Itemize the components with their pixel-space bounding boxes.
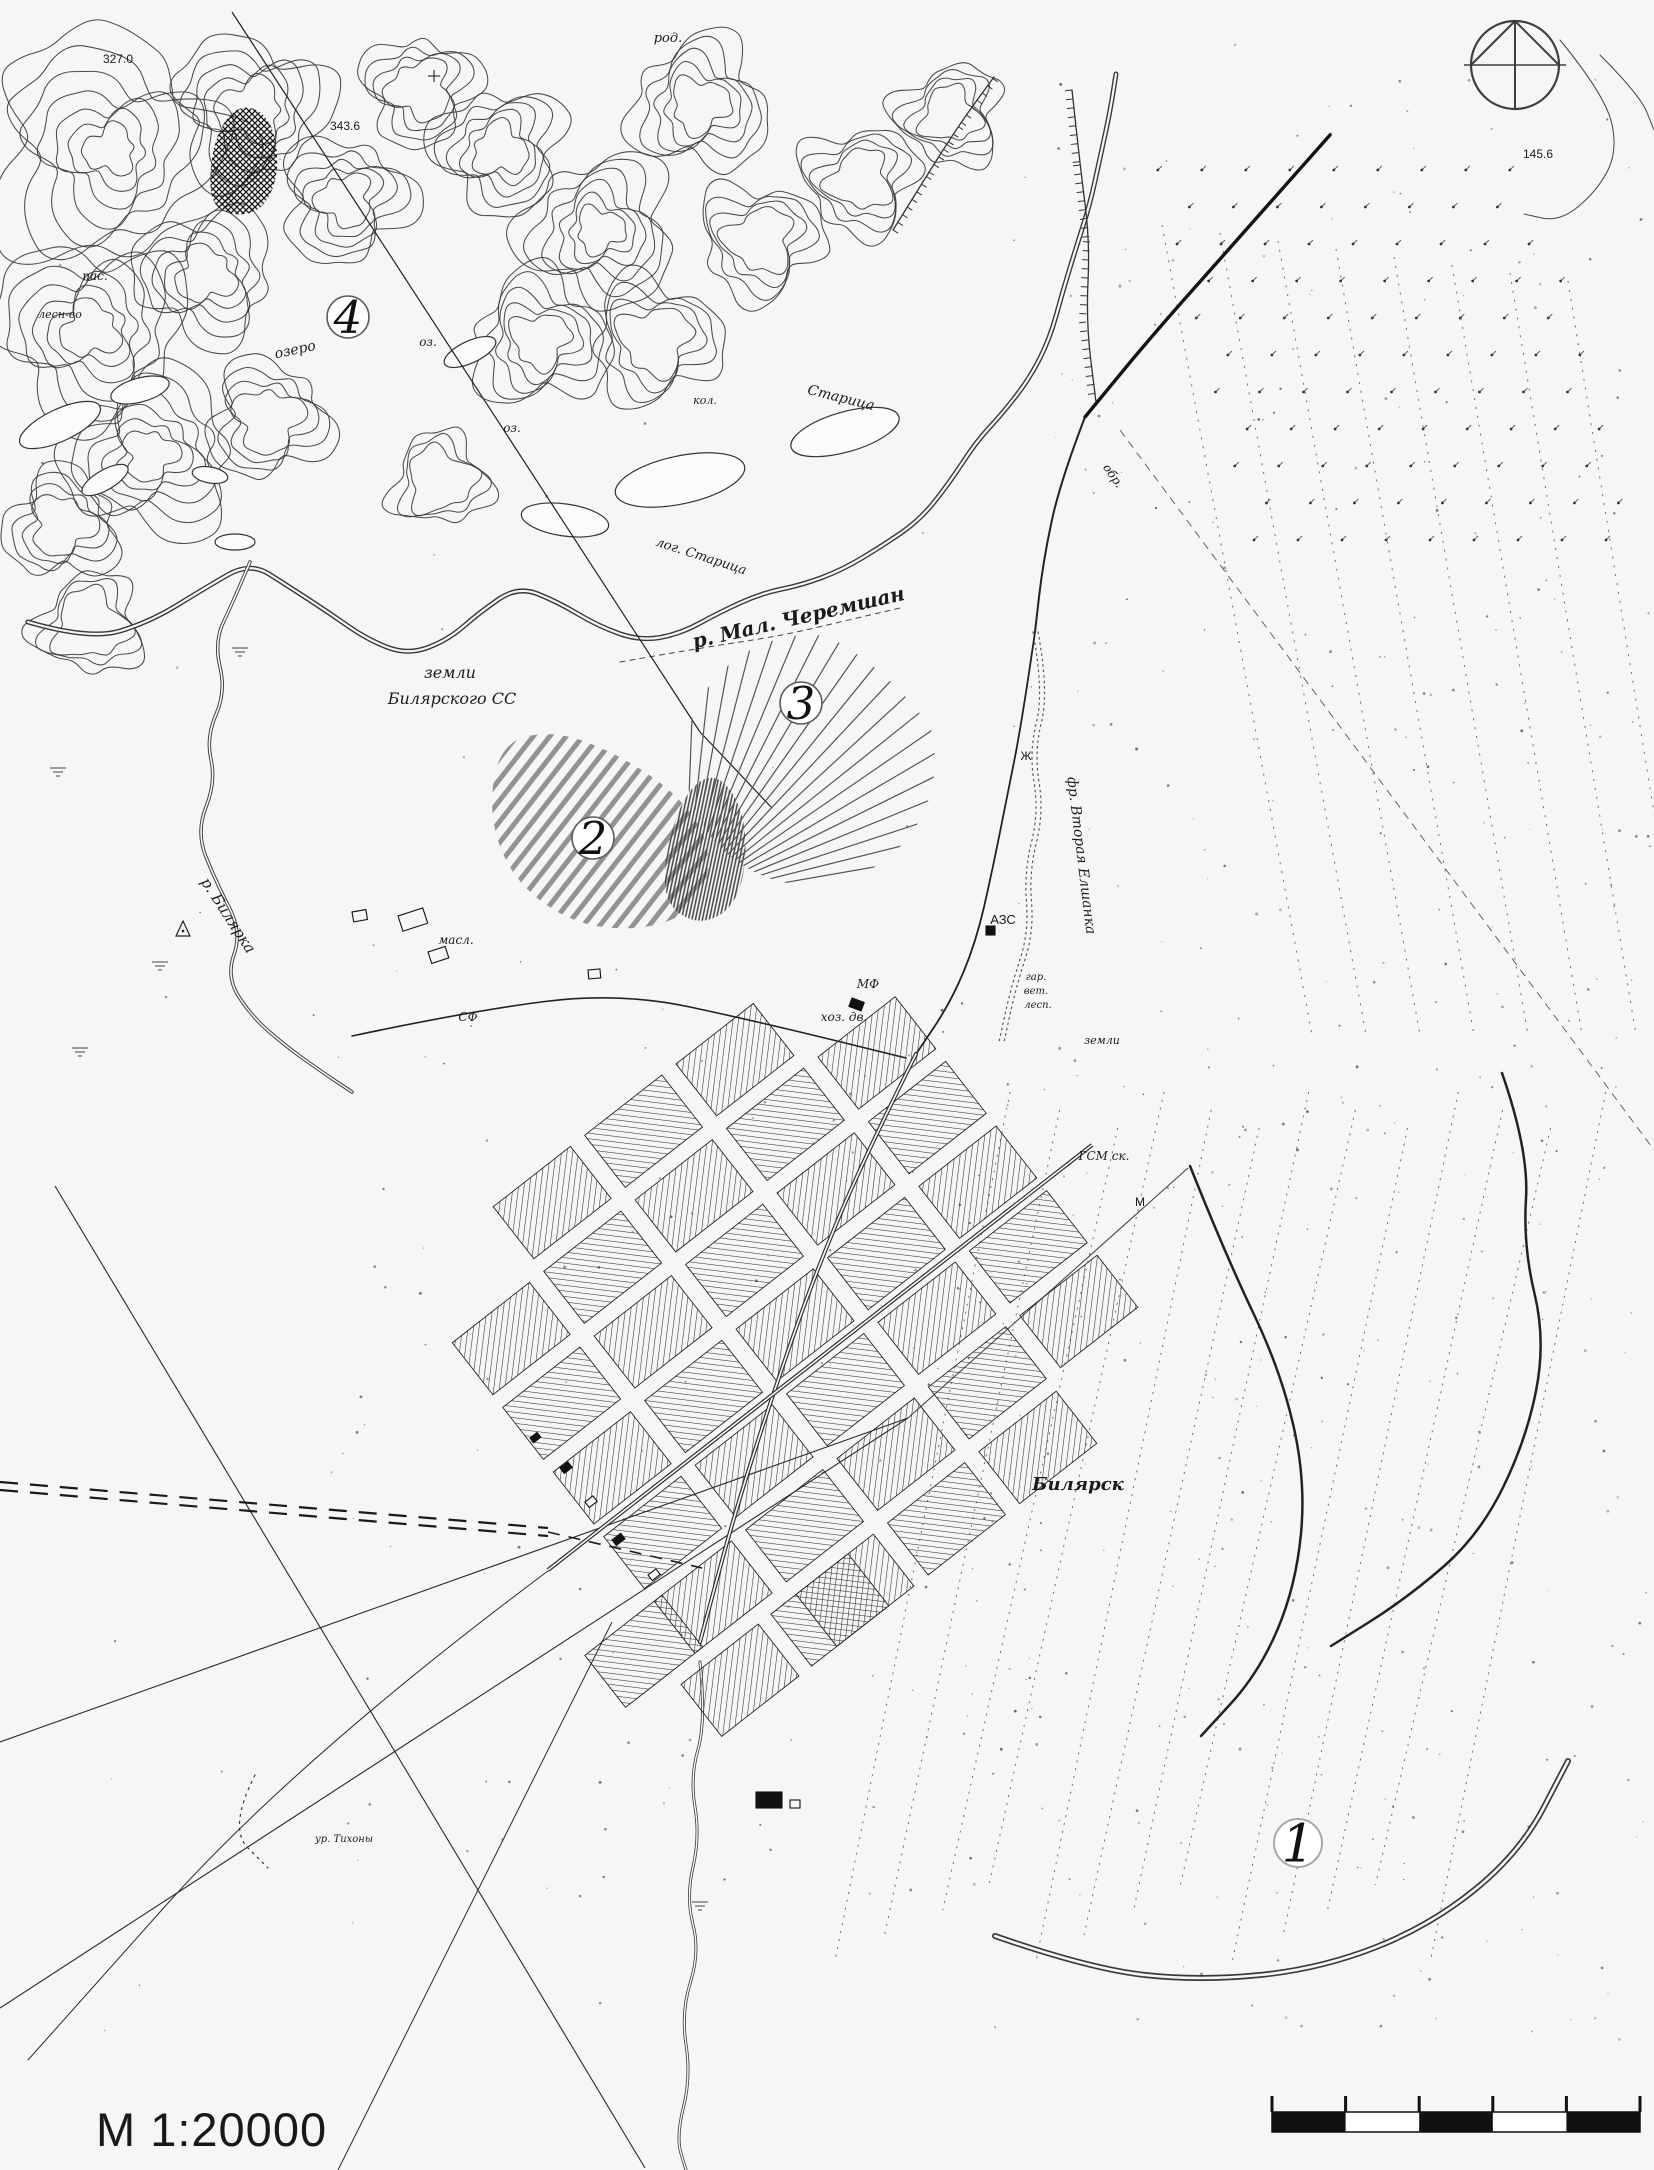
map-label: масл. bbox=[438, 933, 473, 947]
map-label: СФ bbox=[458, 1010, 477, 1024]
svg-text:4: 4 bbox=[333, 291, 363, 344]
map-label: ур. Тихоны bbox=[314, 1834, 373, 1845]
map-label: р. Мал. Черемшан bbox=[690, 581, 907, 653]
map-label: обр. bbox=[1100, 461, 1126, 490]
map-label: Билярского СС bbox=[387, 689, 517, 708]
map-canvas: 327.0343.6145.6род.пас.лесн-воозерооз.оз… bbox=[0, 0, 1654, 2170]
contour-lines bbox=[0, 20, 1005, 674]
map-label: 343.6 bbox=[330, 119, 360, 133]
compass-icon bbox=[1464, 21, 1566, 109]
map-label: 145.6 bbox=[1523, 147, 1553, 161]
svg-text:1: 1 bbox=[1281, 1814, 1314, 1874]
svg-text:2: 2 bbox=[578, 812, 608, 865]
map-label: лесп. bbox=[1024, 1000, 1052, 1011]
embankment-teeth bbox=[893, 77, 1096, 402]
map-label: лог. Старица bbox=[654, 535, 748, 578]
map-label: оз. bbox=[419, 335, 437, 349]
map-label: лесн-во bbox=[38, 308, 82, 321]
map-drawing: 327.0343.6145.6род.пас.лесн-воозерооз.оз… bbox=[0, 12, 1654, 2170]
map-label: 327.0 bbox=[103, 52, 133, 66]
map-label: М bbox=[1135, 1195, 1145, 1209]
map-scale-label: М 1:20000 bbox=[96, 2103, 327, 2156]
map-label: Ж bbox=[1020, 749, 1031, 763]
map-label: род. bbox=[654, 31, 683, 46]
map-label: р. Билярка bbox=[197, 874, 259, 957]
map-label: Старица bbox=[806, 382, 876, 414]
map-label: МФ bbox=[856, 977, 879, 991]
svg-text:3: 3 bbox=[787, 677, 816, 730]
map-marker-3: 3 bbox=[780, 677, 822, 730]
map-label: пас. bbox=[82, 269, 107, 283]
map-label: фр. Вторая Елшанка bbox=[1063, 776, 1098, 935]
orchard-symbols bbox=[1156, 40, 1654, 541]
map-label: озеро bbox=[273, 338, 317, 362]
scale-bar bbox=[1272, 2096, 1640, 2132]
map-label: вет. bbox=[1024, 986, 1048, 997]
village-blocks bbox=[332, 932, 1188, 1772]
map-label: земли bbox=[424, 663, 476, 682]
map-label: Билярск bbox=[1031, 1474, 1125, 1495]
map-label: кол. bbox=[693, 394, 717, 407]
topographic-map-page: 327.0343.6145.6род.пас.лесн-воозерооз.оз… bbox=[0, 0, 1654, 2170]
map-label: ГСМ ск. bbox=[1078, 1149, 1130, 1163]
map-label: оз. bbox=[503, 421, 521, 435]
map-label: АЗС bbox=[990, 912, 1016, 927]
map-label: земли bbox=[1084, 1034, 1120, 1047]
map-marker-1: 1 bbox=[1274, 1814, 1322, 1874]
map-label: хоз. дв. bbox=[821, 1010, 868, 1024]
map-label: гар. bbox=[1026, 972, 1047, 983]
map-marker-4: 4 bbox=[327, 291, 369, 344]
